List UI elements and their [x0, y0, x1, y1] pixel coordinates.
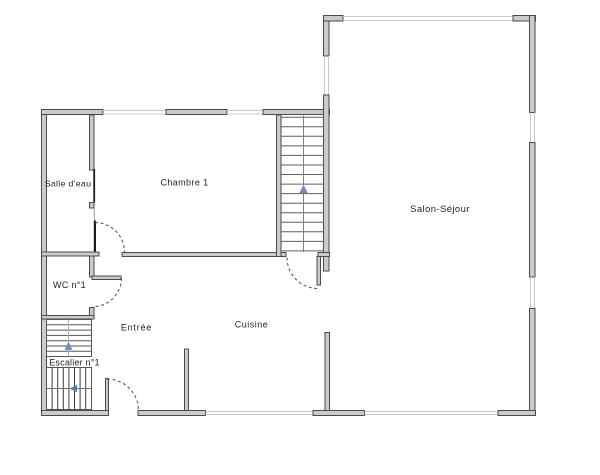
- svg-text:WC n°1: WC n°1: [53, 280, 86, 290]
- svg-text:Chambre 1: Chambre 1: [160, 178, 208, 188]
- svg-text:Escalier n°1: Escalier n°1: [49, 358, 100, 368]
- svg-text:Entrée: Entrée: [121, 323, 152, 333]
- svg-text:Cuisine: Cuisine: [235, 320, 269, 330]
- svg-text:Salon-Séjour: Salon-Séjour: [410, 204, 470, 215]
- svg-text:Salle d'eau: Salle d'eau: [45, 179, 92, 189]
